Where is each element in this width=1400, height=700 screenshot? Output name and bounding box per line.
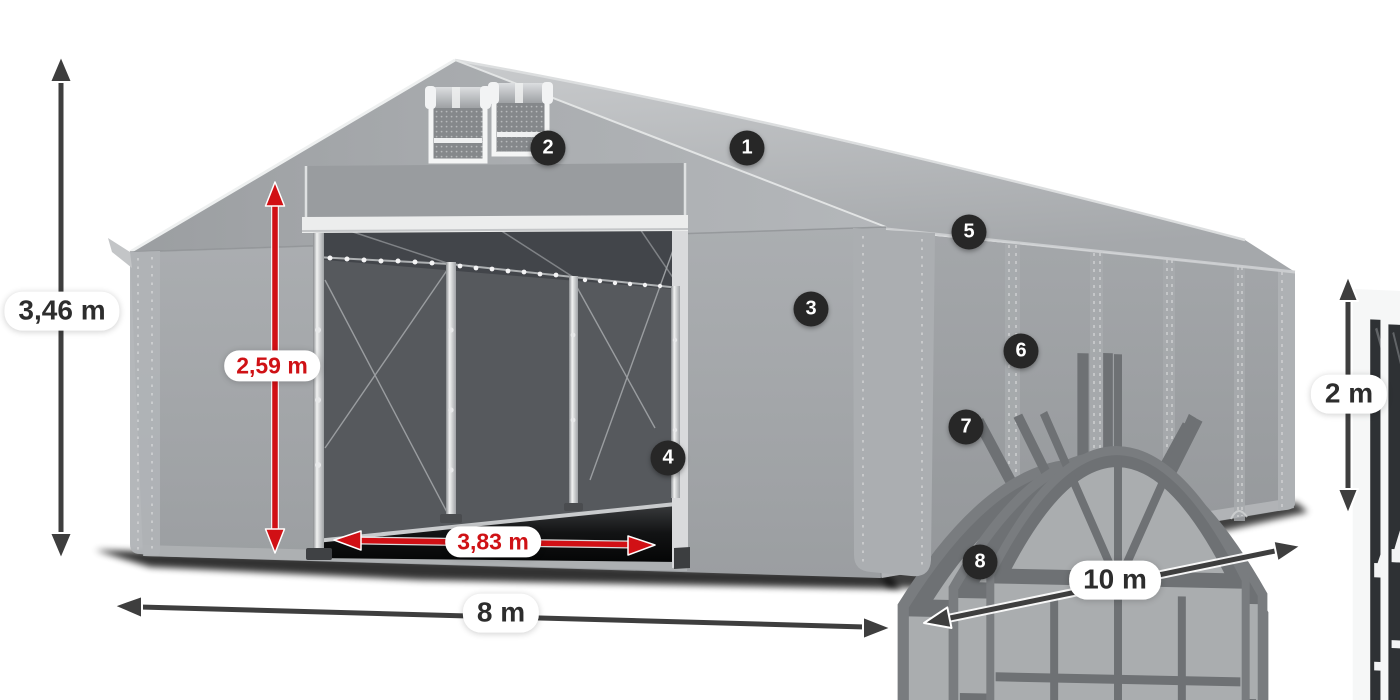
- tent-illustration: [0, 0, 1400, 700]
- dim-label-entrance-height: 2,59 m: [224, 350, 320, 381]
- part-badge-8[interactable]: 8: [963, 545, 998, 580]
- part-badge-2[interactable]: 2: [531, 131, 566, 166]
- tent-dimension-diagram: 3,46 m 2,59 m 3,83 m 8 m 10 m 2 m 1 2 3 …: [0, 0, 1400, 700]
- part-badge-3[interactable]: 3: [794, 292, 829, 327]
- part-badge-7[interactable]: 7: [949, 410, 984, 445]
- dim-label-total-height: 3,46 m: [4, 292, 119, 331]
- part-badge-4[interactable]: 4: [651, 441, 686, 476]
- part-badge-5[interactable]: 5: [952, 215, 987, 250]
- front-corner-pillar: [853, 228, 935, 576]
- part-badge-1[interactable]: 1: [730, 131, 765, 166]
- dim-label-front-width: 8 m: [463, 594, 539, 633]
- dim-label-side-height: 2 m: [1311, 375, 1387, 414]
- part-badge-6[interactable]: 6: [1004, 334, 1039, 369]
- dim-label-entrance-width: 3,83 m: [445, 526, 541, 557]
- dim-label-side-length: 10 m: [1069, 561, 1161, 600]
